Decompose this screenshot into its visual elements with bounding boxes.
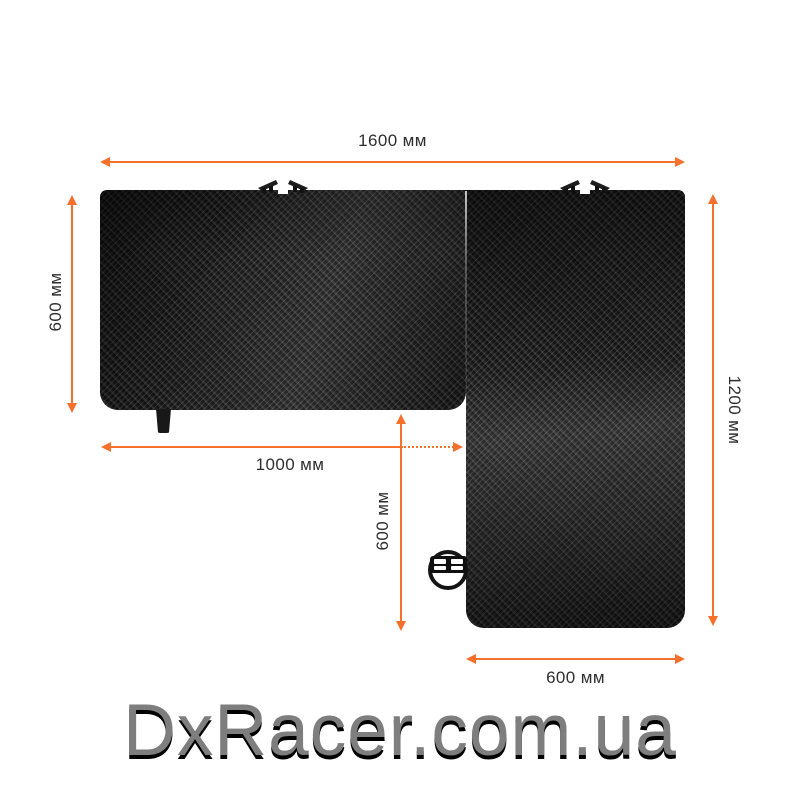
panel-seam <box>465 191 467 408</box>
dimension-label: 1200 мм <box>724 344 744 476</box>
panel-sheen <box>466 190 685 628</box>
desk-main-panel <box>100 190 466 410</box>
cable-clip-icon <box>557 177 613 194</box>
mount-tab <box>155 409 172 433</box>
power-socket-icon <box>430 556 467 573</box>
desk-return-panel <box>466 190 685 628</box>
cable-clip-icon <box>255 177 311 194</box>
dimension-label: 600 мм <box>46 242 66 362</box>
dimension-label: 600 мм <box>373 465 393 577</box>
dimension-label: 1600 мм <box>100 131 685 151</box>
panel-sheen <box>100 190 466 410</box>
watermark: DxRacer.com.ua <box>0 694 800 767</box>
dimension-label: 600 мм <box>466 668 685 688</box>
